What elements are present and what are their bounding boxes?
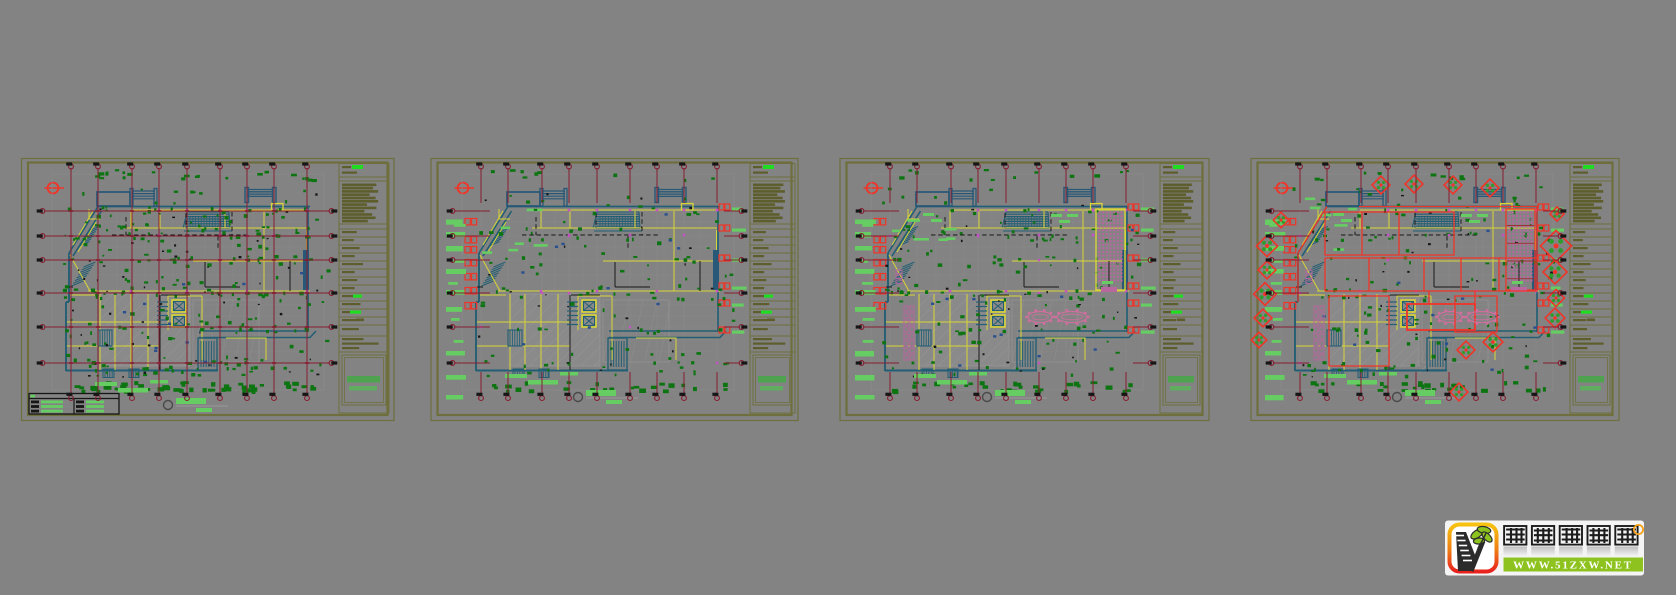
svg-text:WWW.51ZXW.NET: WWW.51ZXW.NET: [1513, 560, 1633, 572]
